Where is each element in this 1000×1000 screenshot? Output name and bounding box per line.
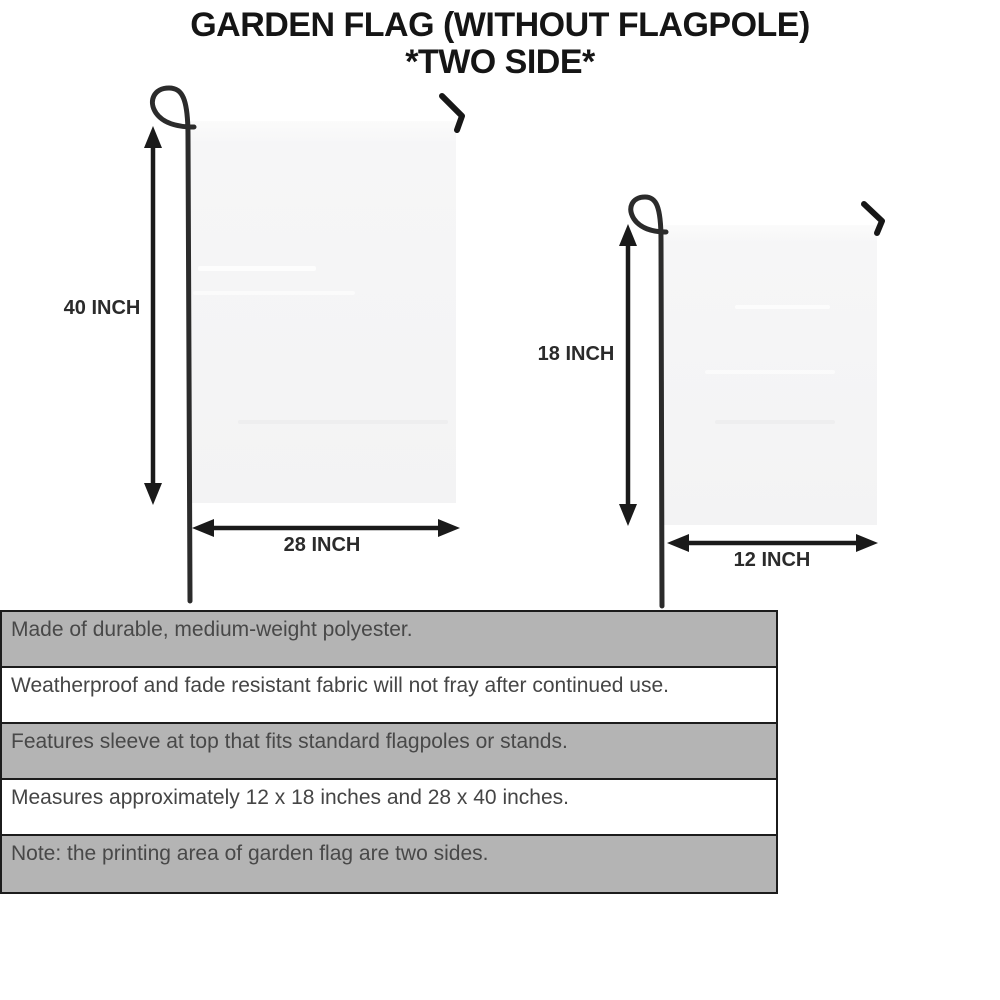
feature-row-measures: Measures approximately 12 x 18 inches an… [2, 780, 776, 836]
small-width-label: 12 INCH [712, 549, 832, 572]
feature-row-weatherproof: Weatherproof and fade resistant fabric w… [2, 668, 776, 724]
feature-text: Measures approximately 12 x 18 inches an… [11, 786, 569, 809]
feature-row-note: Note: the printing area of garden flag a… [2, 836, 776, 892]
feature-list: Made of durable, medium-weight polyester… [0, 610, 778, 894]
small-height-arrow [619, 224, 637, 526]
small-flag-assembly [619, 197, 882, 606]
small-height-label: 18 INCH [516, 343, 636, 366]
feature-row-sleeve: Features sleeve at top that fits standar… [2, 724, 776, 780]
small-flagpole-with-loop-icon [631, 197, 666, 606]
large-width-label: 28 INCH [262, 534, 382, 557]
feature-text: Weatherproof and fade resistant fabric w… [11, 674, 669, 697]
large-flagpole-with-loop-icon [152, 88, 194, 601]
feature-row-material: Made of durable, medium-weight polyester… [2, 612, 776, 668]
large-height-label: 40 INCH [42, 297, 162, 320]
feature-text: Made of durable, medium-weight polyester… [11, 618, 413, 641]
garden-flag-infographic: GARDEN FLAG (WITHOUT FLAGPOLE) *TWO SIDE… [0, 0, 1000, 1000]
large-flag-canvas [187, 121, 456, 503]
feature-text: Features sleeve at top that fits standar… [11, 730, 568, 753]
feature-text: Note: the printing area of garden flag a… [11, 842, 488, 865]
large-flag-assembly [144, 88, 462, 601]
small-flag-canvas [663, 225, 877, 525]
